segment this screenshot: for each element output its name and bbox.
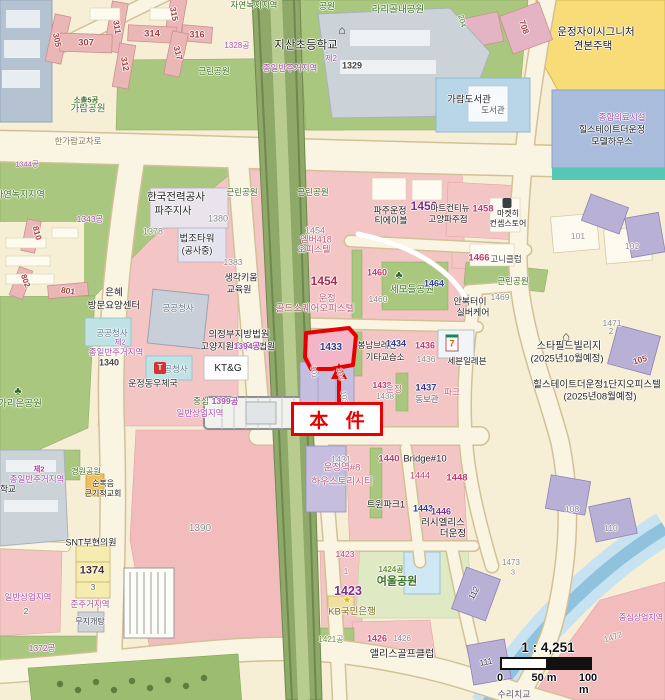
subject-parcel-1433[interactable]	[305, 328, 356, 369]
scale-ticks: 0 50 m 100 m	[500, 672, 588, 686]
scale-tick-0: 0	[497, 672, 503, 684]
model-house-parcel	[536, 0, 665, 94]
subject-callout: 本 件	[291, 402, 383, 436]
map-canvas	[0, 0, 665, 700]
map-viewport[interactable]: 305311315314316307312317근린공원소촐5공가람공원한가람교…	[0, 0, 665, 700]
scale-bar	[500, 657, 592, 670]
scale-bar-black	[546, 659, 590, 668]
scale-tick-50: 50 m	[531, 672, 556, 684]
scale-control: 1 : 4,251 0 50 m 100 m	[492, 640, 604, 686]
scale-tick-100: 100 m	[579, 672, 597, 696]
scale-bar-white	[502, 659, 546, 668]
subject-callout-text: 本 件	[309, 406, 370, 433]
scale-ratio: 1 : 4,251	[492, 640, 604, 655]
